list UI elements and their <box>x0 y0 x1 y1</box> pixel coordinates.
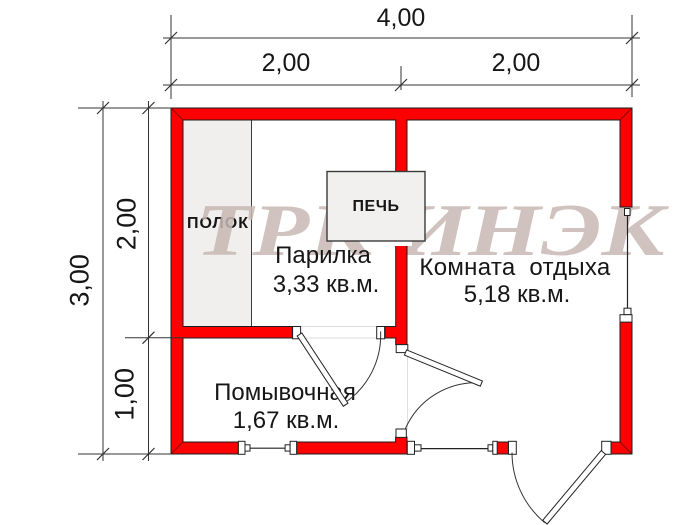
svg-text:1,67 кв.м.: 1,67 кв.м. <box>233 407 339 434</box>
svg-text:3,00: 3,00 <box>65 254 95 307</box>
svg-text:2,00: 2,00 <box>492 49 541 77</box>
svg-text:3,33 кв.м.: 3,33 кв.м. <box>273 271 379 298</box>
svg-text:2,00: 2,00 <box>262 49 311 77</box>
svg-text:Комната отдыха: Комната отдыха <box>419 254 611 281</box>
svg-text:1,00: 1,00 <box>110 368 140 421</box>
svg-text:Парилка: Парилка <box>275 242 371 269</box>
svg-text:5,18 кв.м.: 5,18 кв.м. <box>464 281 570 308</box>
svg-text:ПЕЧЬ: ПЕЧЬ <box>353 198 400 215</box>
svg-text:4,00: 4,00 <box>377 4 426 32</box>
svg-text:2,00: 2,00 <box>112 198 142 251</box>
